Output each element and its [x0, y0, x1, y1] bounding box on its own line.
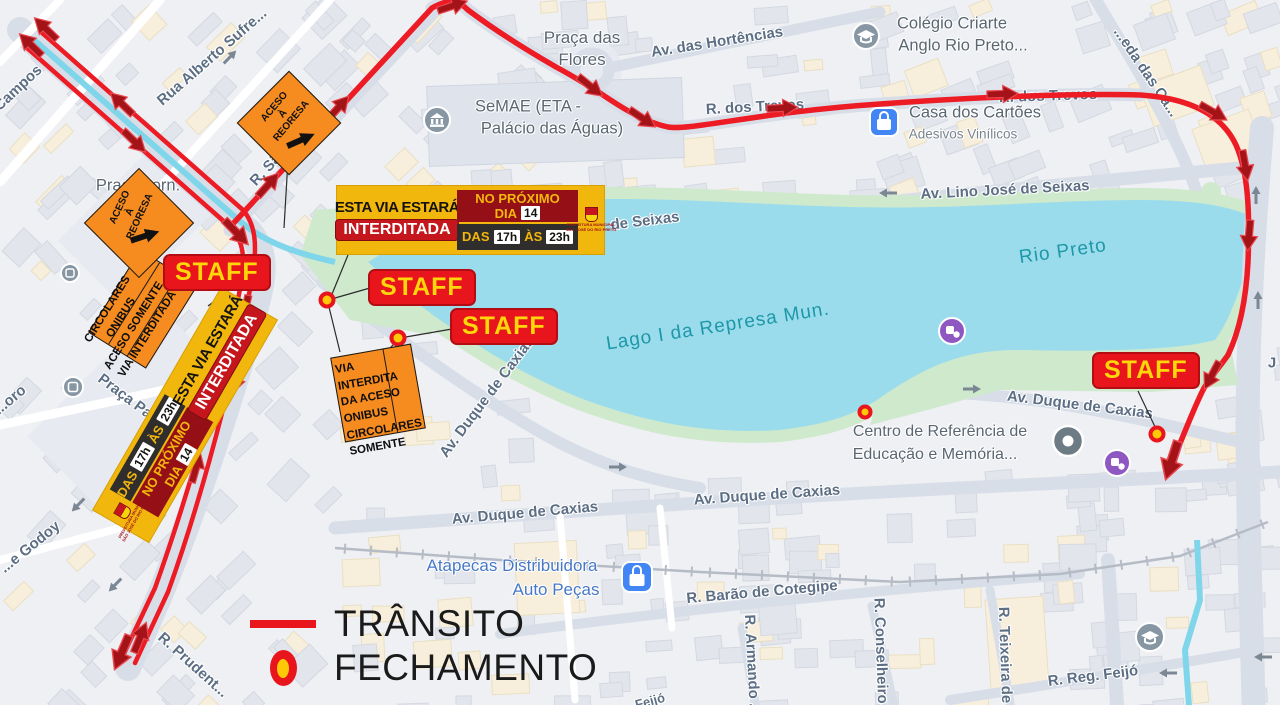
banner-dia-num: 14	[521, 206, 540, 220]
street-label-av-lino: Av. Lino José de Seixas	[920, 177, 1090, 203]
staff-badge-1: STAFF	[163, 254, 271, 291]
street-label-duque-lakeside: Av. Duque de Caxias	[436, 333, 538, 460]
place-label-semae-2: Palácio das Águas)	[481, 120, 623, 139]
banner-logo2: SÃO JOSÉ DO RIO PRETO	[566, 227, 617, 232]
street-label-duque-bottom-1: Av. Duque de Caxias	[451, 498, 599, 528]
closure-dot	[1151, 428, 1164, 441]
place-label-praca-flores-1: Praça das	[544, 28, 621, 48]
poi-purple-icon	[939, 318, 965, 344]
legend-fechamento-label: FECHAMENTO	[334, 647, 597, 689]
street-label-oro: ...oro	[0, 382, 30, 419]
place-label-centro-1: Centro de Referência de	[853, 423, 1027, 441]
staff-badge-3: STAFF	[450, 308, 558, 345]
street-label-armando: R. Armando ...	[741, 614, 763, 716]
water-label-rio-preto: Rio Preto	[1018, 235, 1108, 269]
street-label-duque-bottom-2: Av. Duque de Caxias	[693, 481, 841, 508]
street-label-duque-se: Av. Duque de Caxias	[1006, 388, 1154, 423]
staff-badge-4: STAFF	[1092, 352, 1200, 389]
city-crest-icon	[585, 207, 598, 222]
legend-transito-label: TRÂNSITO	[334, 603, 524, 645]
street-label-trevos-1: R. dos Trevos	[705, 96, 804, 118]
bus-stop-icon	[61, 264, 79, 282]
place-label-centro-2: Educação e Memória...	[853, 446, 1018, 464]
street-label-conselheiro: R. Conselheiro...	[870, 598, 891, 717]
banner-proximo: NO PRÓXIMO	[475, 191, 560, 206]
street-label-alameda: ...eda das Ca...	[1110, 24, 1182, 120]
banner-das: DAS	[462, 229, 489, 244]
place-label-atapecas-2: Auto Peças	[513, 580, 600, 600]
street-label-rua-alberto: Rua Alberto Sufre...	[154, 5, 270, 109]
banner-hora1: 17h	[494, 230, 521, 244]
street-label-prudente: R. Prudent...	[154, 629, 231, 701]
shopping-icon	[870, 108, 898, 136]
street-label-campos: Campos	[0, 62, 45, 115]
place-label-casa-1: Casa dos Cartões	[909, 104, 1041, 123]
map-legend: TRÂNSITO FECHAMENTO	[250, 602, 597, 690]
street-label-hortencias: Av. das Hortências	[650, 23, 784, 61]
closure-dot	[860, 407, 871, 418]
place-label-praca-flores-2: Flores	[558, 50, 605, 70]
road-closed-banner: ESTA VIA ESTARÁ INTERDITADA NO PRÓXIMO D…	[337, 186, 604, 254]
street-label-teixeira: R. Teixeira de	[995, 607, 1015, 704]
banner-line2: INTERDITADA	[335, 219, 458, 241]
bottom-white-strip	[0, 705, 1280, 720]
museum-icon	[424, 107, 450, 133]
legend-closure-swatch	[270, 650, 297, 686]
place-label-atapecas-1: Atapecas Distribuidora	[426, 556, 597, 576]
banner-as: ÀS	[524, 229, 542, 244]
shopping-icon	[622, 562, 652, 592]
street-label-reg-feijo: R. Reg. Feijó	[1047, 662, 1139, 690]
banner-as: ÀS	[144, 423, 166, 446]
map-canvas: { "legend": {"transito": "TRÂNSITO", "fe…	[0, 0, 1280, 720]
place-label-semae-1: SeMAE (ETA -	[475, 98, 581, 117]
staff-badge-2: STAFF	[368, 269, 476, 306]
poi-gray-icon	[1053, 426, 1083, 456]
banner-line1: ESTA VIA ESTARÁ	[335, 199, 459, 216]
closure-dot	[321, 294, 334, 307]
banner-dia: DIA	[495, 206, 517, 221]
place-label-colegio-1: Colégio Criarte	[897, 15, 1007, 34]
school-icon	[853, 23, 879, 49]
water-label-lago: Lago I da Represa Mun.	[605, 298, 832, 355]
place-label-casa-2: Adesivos Vinílicos	[909, 127, 1018, 142]
railway	[335, 520, 1268, 587]
bus-stop-icon	[63, 377, 83, 397]
street-label-barao: R. Barão de Cotegipe	[686, 577, 839, 607]
school-icon	[1136, 623, 1164, 651]
legend-route-swatch	[250, 620, 316, 628]
street-label-de-seixas: de Seixas	[610, 208, 681, 233]
place-label-colegio-2: Anglo Rio Preto...	[898, 37, 1027, 56]
street-label-godoy: ...e Godoy	[0, 518, 64, 577]
closure-dot	[392, 332, 405, 345]
street-label-j: J	[1268, 355, 1276, 372]
poi-purple-icon	[1104, 450, 1130, 476]
